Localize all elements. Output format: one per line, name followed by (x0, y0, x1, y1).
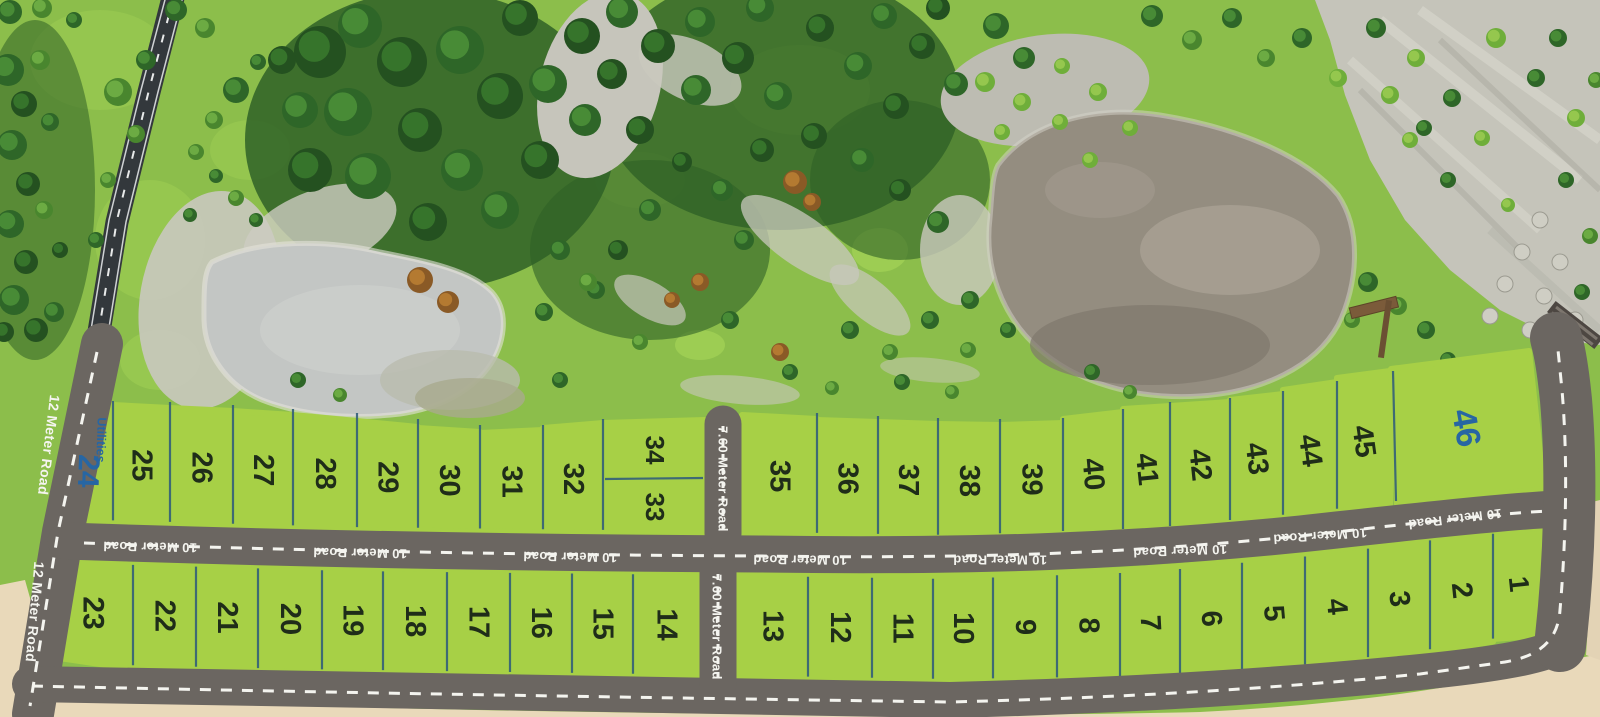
plot-number: 37 (892, 464, 924, 496)
plot-number: 18 (399, 605, 431, 637)
plot-number: 15 (587, 607, 619, 639)
plot-number: 10 (947, 612, 979, 644)
plot-number: 7 (1134, 614, 1167, 632)
plot-number: 41 (1129, 452, 1164, 487)
plot-number: 33 (640, 493, 670, 522)
plot-number: 34 (640, 436, 670, 465)
plot-number: 3 (1382, 589, 1416, 608)
plot-number: 29 (372, 461, 404, 493)
plot-number: 46 (1444, 406, 1488, 450)
plot-number: 9 (1009, 619, 1041, 635)
plot-number: 38 (953, 465, 985, 497)
plot-number: 23 (77, 596, 110, 629)
plot-number: 25 (126, 449, 158, 481)
plot-number: 42 (1182, 447, 1217, 482)
plot-number: 43 (1239, 441, 1275, 477)
plot-number: 35 (764, 460, 796, 492)
plot-number: 5 (1257, 604, 1290, 623)
plot-number: 17 (463, 606, 495, 638)
plot-number: 16 (525, 607, 557, 639)
plot-number: 1 (1503, 575, 1535, 594)
road-label-760m: 7.60 Meter Road (710, 574, 725, 680)
plot-number: 40 (1076, 457, 1111, 492)
plot-number: 44 (1292, 432, 1328, 468)
plot-number: 27 (247, 454, 279, 486)
plot-number: 13 (757, 610, 789, 642)
site-plan-image: 12 Meter Road12 Meter Road10 Meter Road1… (0, 0, 1600, 717)
plot-number: 45 (1345, 423, 1381, 459)
plot-number: 8 (1073, 617, 1105, 633)
plot-number: 28 (309, 458, 341, 490)
plot-number: 32 (557, 463, 589, 495)
master-plan-svg: 12 Meter Road12 Meter Road10 Meter Road1… (0, 0, 1600, 717)
plot-number: 36 (832, 463, 864, 495)
plot-number: 6 (1194, 610, 1227, 628)
plot-number: 22 (149, 600, 181, 632)
road-label-10m: 10 Meter Road (953, 553, 1047, 568)
plot-number: 20 (274, 603, 306, 635)
plot-sublabel-utilities: Utilities (93, 417, 109, 463)
plot-number: 11 (887, 613, 919, 644)
plot-number: 19 (337, 604, 369, 636)
plot-number: 12 (824, 611, 856, 643)
road-label-10m: 10 Meter Road (103, 539, 197, 556)
ring-road-right (1556, 338, 1569, 646)
plot-number: 14 (651, 608, 683, 640)
road-label-10m: 10 Meter Road (523, 549, 617, 566)
plot-number: 26 (186, 452, 218, 484)
plot-number: 30 (433, 464, 465, 496)
plot-number: 31 (496, 466, 528, 498)
road-label-10m: 10 Meter Road (753, 552, 847, 568)
plot-number: 21 (211, 601, 243, 633)
plot-number: 2 (1445, 581, 1479, 600)
plot-number: 4 (1320, 597, 1354, 616)
plot-number: 39 (1016, 463, 1048, 495)
road-label-760m: 7.60 Meter Road (716, 426, 731, 532)
road-label-10m: 10 Meter Road (313, 545, 407, 562)
